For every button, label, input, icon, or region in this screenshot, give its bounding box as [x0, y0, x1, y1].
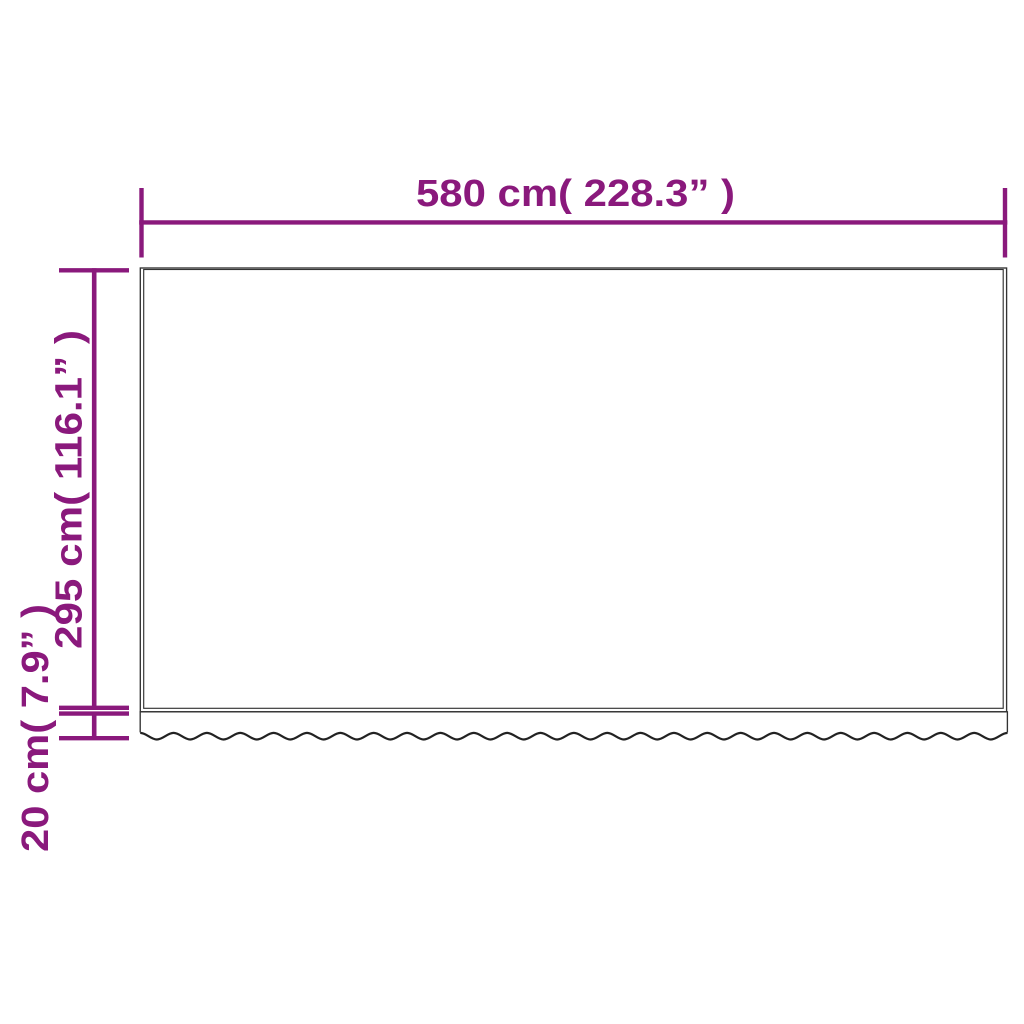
svg-text:580 cm( 228.3” ): 580 cm( 228.3” )	[416, 173, 735, 215]
svg-text:295 cm( 116.1” ): 295 cm( 116.1” )	[49, 330, 91, 649]
svg-text:20 cm( 7.9” ): 20 cm( 7.9” )	[15, 604, 57, 852]
